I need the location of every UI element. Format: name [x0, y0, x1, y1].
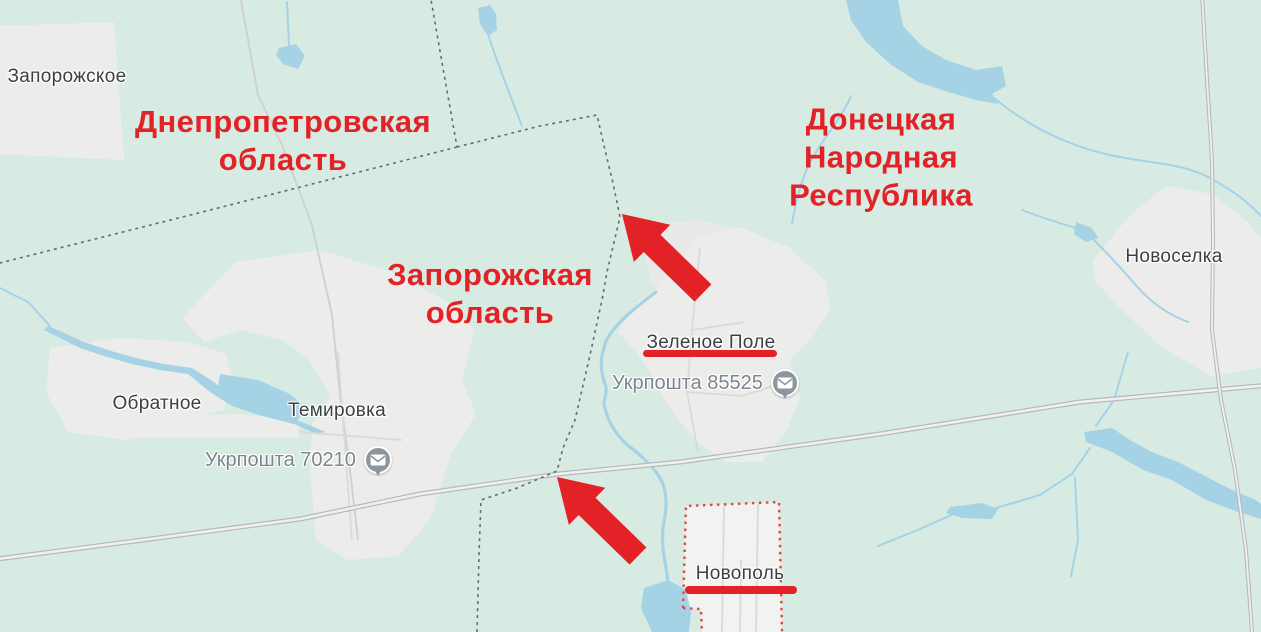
river: [287, 2, 289, 45]
annotation-dnipropetrovsk-oblast: Днепропетровская область: [135, 103, 431, 179]
oblast-border-east: [457, 115, 620, 632]
lake-top-right: [846, 0, 1006, 104]
pin-tail: [373, 467, 383, 481]
poi-label: Укрпошта 85525: [612, 372, 763, 395]
pin-tail: [780, 390, 790, 404]
annotation-underline-zelenoe-pole: [643, 350, 777, 357]
river: [994, 98, 1261, 216]
place-label-obratnoe[interactable]: Обратное: [112, 393, 201, 415]
annotation-zaporizhzhia-oblast: Запорожская область: [387, 256, 593, 332]
river: [0, 288, 50, 326]
mail-pin-icon[interactable]: [771, 369, 799, 397]
pond: [946, 503, 998, 519]
place-label-novopol[interactable]: Новополь: [696, 563, 785, 585]
place-label-novoselka[interactable]: Новоселка: [1125, 246, 1222, 268]
field-polygon-zaporozhskoe: [0, 22, 124, 160]
river: [878, 448, 1090, 546]
poi-ukrposhta-70210[interactable]: Укрпошта 70210: [205, 446, 392, 474]
map-graphics: [0, 0, 1261, 632]
map-canvas[interactable]: Запорожское Обратное Темировка Новоселка…: [0, 0, 1261, 632]
river: [1096, 352, 1128, 426]
oblast-border-north: [430, 0, 457, 147]
envelope-glyph: [370, 454, 386, 466]
place-label-zaporozhskoe[interactable]: Запорожское: [8, 66, 127, 88]
village-polygon-novoselka: [1092, 186, 1261, 376]
annotation-donetsk-peoples-republic: Донецкая Народная Республика: [789, 100, 973, 213]
pond: [478, 5, 497, 36]
poi-ukrposhta-85525[interactable]: Укрпошта 85525: [612, 369, 799, 397]
pond: [276, 44, 305, 69]
place-label-temirovka[interactable]: Темировка: [288, 400, 386, 422]
poi-label: Укрпошта 70210: [205, 449, 356, 472]
mail-pin-icon[interactable]: [364, 446, 392, 474]
envelope-glyph: [777, 377, 793, 389]
annotation-underline-novopol: [685, 586, 797, 594]
river: [1071, 478, 1078, 576]
river: [488, 34, 522, 126]
pond: [1074, 222, 1098, 242]
